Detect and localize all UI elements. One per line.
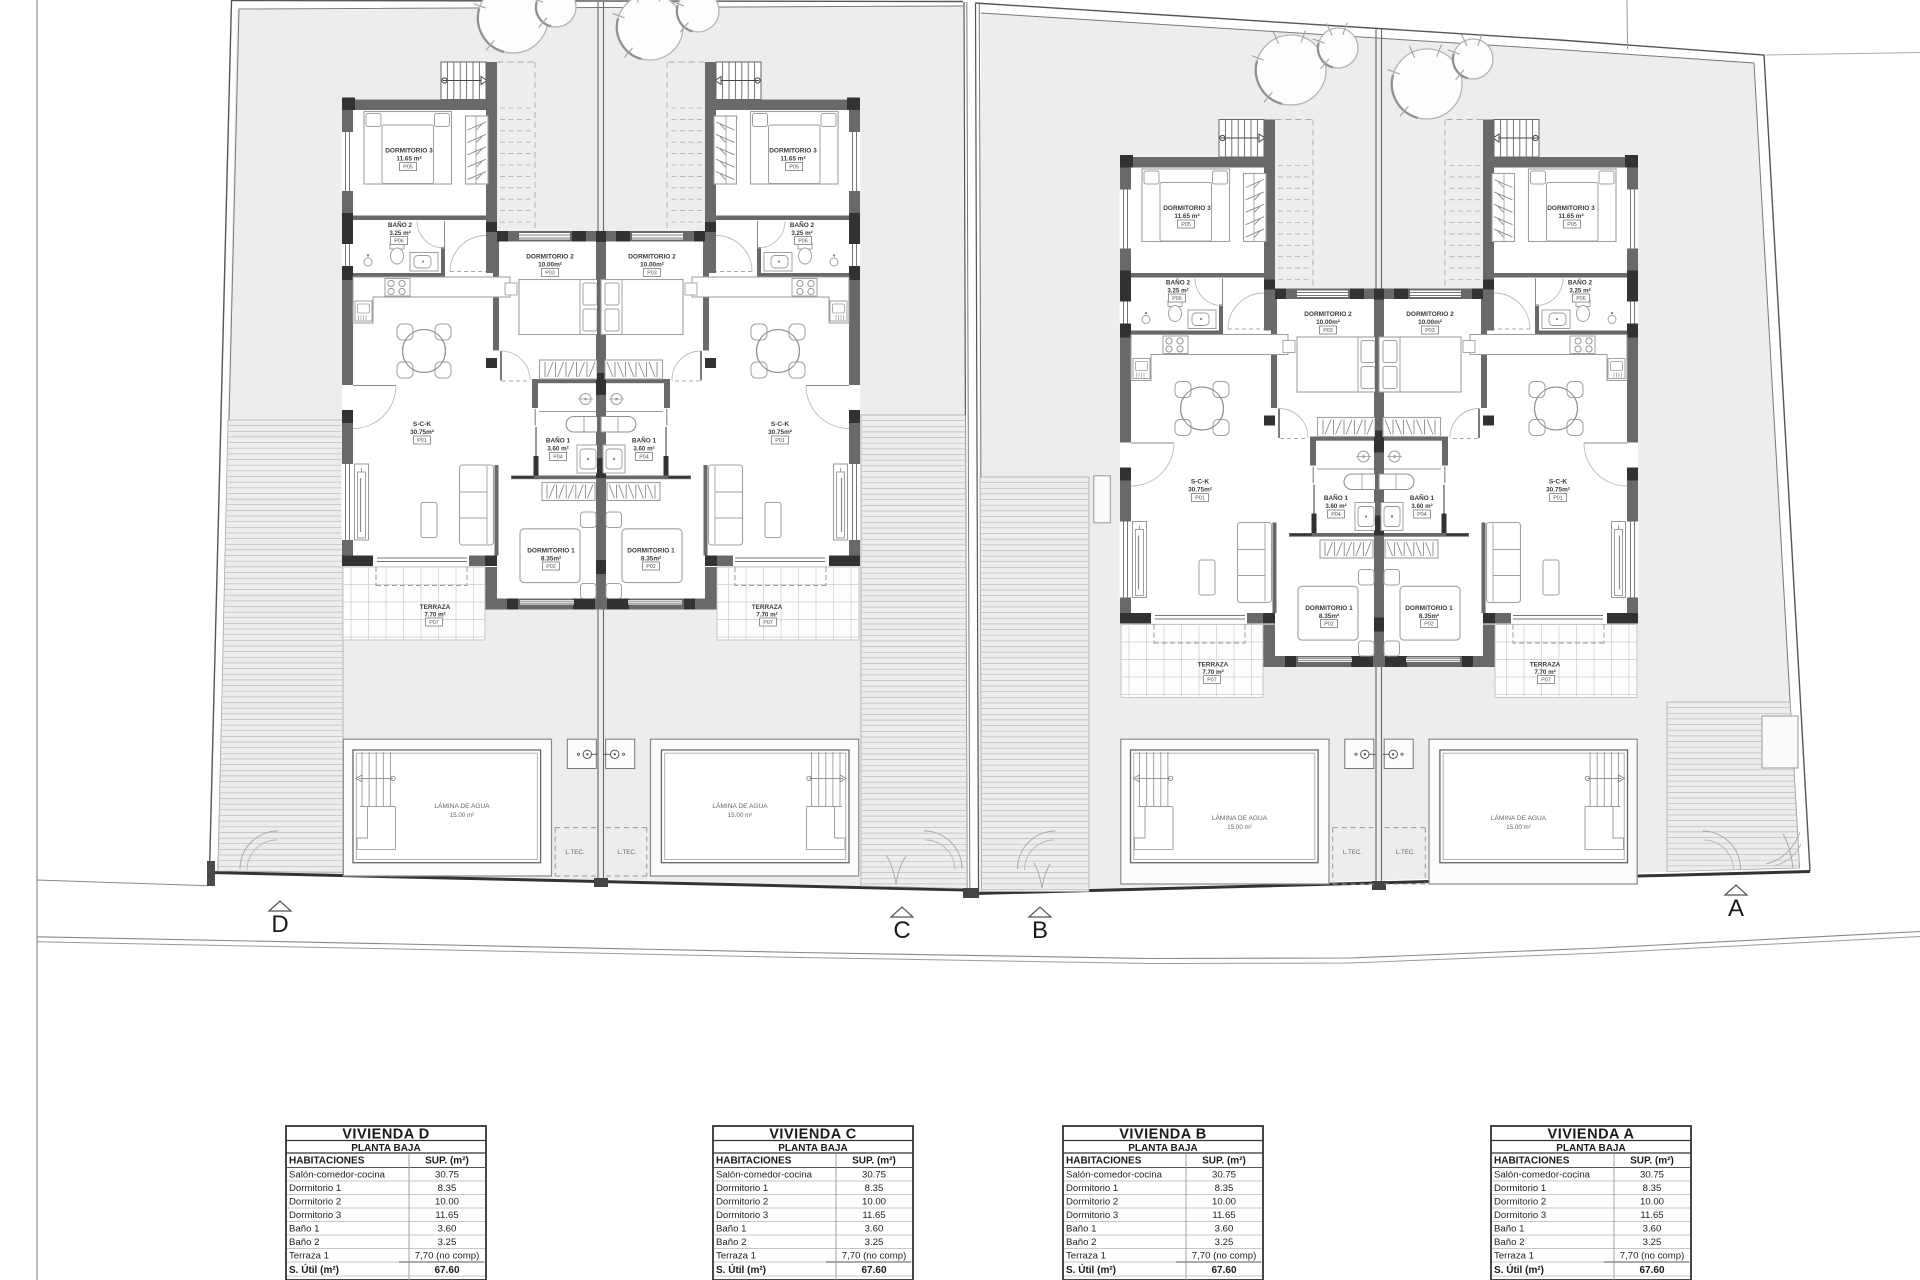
svg-text:11.65 m²: 11.65 m² bbox=[1558, 213, 1583, 220]
svg-text:HABITACIONES: HABITACIONES bbox=[716, 1156, 792, 1167]
svg-text:3.25: 3.25 bbox=[1643, 1237, 1662, 1248]
svg-text:P04: P04 bbox=[1331, 512, 1341, 518]
svg-text:Salón-comedor-cocina: Salón-comedor-cocina bbox=[716, 1170, 813, 1181]
svg-text:P06: P06 bbox=[1576, 296, 1586, 302]
svg-text:Dormitorio 3: Dormitorio 3 bbox=[1494, 1210, 1546, 1221]
svg-text:DORMITORIO 3: DORMITORIO 3 bbox=[1163, 205, 1211, 212]
svg-text:DORMITORIO 1: DORMITORIO 1 bbox=[1305, 605, 1353, 612]
svg-text:8.35m²: 8.35m² bbox=[1319, 613, 1339, 620]
svg-text:S-C-K: S-C-K bbox=[1191, 479, 1210, 486]
svg-text:3.25 m²: 3.25 m² bbox=[791, 230, 812, 237]
svg-text:7.70 m²: 7.70 m² bbox=[1534, 669, 1555, 676]
svg-text:S. Útil (m²): S. Útil (m²) bbox=[716, 1263, 766, 1276]
svg-text:Dormitorio 1: Dormitorio 1 bbox=[289, 1183, 341, 1194]
svg-text:P05: P05 bbox=[1181, 222, 1191, 228]
svg-text:15.00 m²: 15.00 m² bbox=[450, 812, 474, 819]
svg-text:P01: P01 bbox=[775, 438, 785, 444]
svg-text:3.60: 3.60 bbox=[865, 1224, 884, 1235]
svg-text:TERRAZA: TERRAZA bbox=[1198, 662, 1229, 669]
svg-text:LÁMINA DE AGUA: LÁMINA DE AGUA bbox=[434, 801, 490, 810]
svg-text:P01: P01 bbox=[1553, 496, 1563, 502]
svg-text:DORMITORIO 2: DORMITORIO 2 bbox=[1304, 311, 1352, 318]
svg-text:30.75: 30.75 bbox=[1640, 1170, 1664, 1181]
svg-text:PLANTA BAJA: PLANTA BAJA bbox=[1128, 1143, 1197, 1154]
svg-text:30.75: 30.75 bbox=[1212, 1170, 1236, 1181]
svg-text:Baño 1: Baño 1 bbox=[1494, 1224, 1524, 1235]
svg-text:15.00 m²: 15.00 m² bbox=[728, 812, 752, 819]
svg-text:Dormitorio 1: Dormitorio 1 bbox=[1066, 1183, 1118, 1194]
svg-text:Dormitorio 2: Dormitorio 2 bbox=[716, 1197, 768, 1208]
svg-text:L.TEC.: L.TEC. bbox=[565, 849, 585, 856]
svg-text:LÁMINA DE AGUA: LÁMINA DE AGUA bbox=[712, 801, 768, 810]
svg-text:P04: P04 bbox=[639, 455, 649, 461]
svg-text:S. Útil (m²): S. Útil (m²) bbox=[289, 1263, 339, 1276]
svg-text:BAÑO 1: BAÑO 1 bbox=[1410, 493, 1435, 502]
svg-text:Baño 1: Baño 1 bbox=[1066, 1224, 1096, 1235]
svg-text:Terraza 1: Terraza 1 bbox=[716, 1251, 756, 1262]
svg-text:LÁMINA DE AGUA: LÁMINA DE AGUA bbox=[1491, 813, 1547, 822]
svg-text:SUP. (m²): SUP. (m²) bbox=[1202, 1156, 1246, 1167]
svg-text:Baño 2: Baño 2 bbox=[289, 1237, 319, 1248]
svg-text:HABITACIONES: HABITACIONES bbox=[289, 1156, 365, 1167]
svg-text:67.60: 67.60 bbox=[434, 1265, 459, 1276]
svg-text:3.60: 3.60 bbox=[1215, 1224, 1234, 1235]
svg-text:30.75: 30.75 bbox=[862, 1170, 886, 1181]
svg-text:P01: P01 bbox=[1195, 496, 1205, 502]
svg-text:10.00m²: 10.00m² bbox=[640, 262, 664, 269]
svg-text:10.00: 10.00 bbox=[862, 1197, 886, 1208]
svg-text:S-C-K: S-C-K bbox=[1549, 479, 1568, 486]
svg-text:Salón-comedor-cocina: Salón-comedor-cocina bbox=[289, 1170, 386, 1181]
svg-text:67.60: 67.60 bbox=[1639, 1265, 1664, 1276]
svg-text:DORMITORIO 1: DORMITORIO 1 bbox=[627, 548, 675, 555]
svg-text:P05: P05 bbox=[789, 165, 799, 171]
svg-text:11.65: 11.65 bbox=[862, 1210, 885, 1221]
svg-text:Baño 2: Baño 2 bbox=[1066, 1237, 1096, 1248]
svg-text:DORMITORIO 1: DORMITORIO 1 bbox=[1405, 605, 1453, 612]
svg-text:TERRAZA: TERRAZA bbox=[752, 604, 783, 611]
svg-text:P06: P06 bbox=[1172, 296, 1182, 302]
svg-text:Salón-comedor-cocina: Salón-comedor-cocina bbox=[1066, 1170, 1163, 1181]
svg-text:8.35: 8.35 bbox=[865, 1183, 884, 1194]
svg-text:Baño 2: Baño 2 bbox=[716, 1237, 746, 1248]
svg-text:30.75m²: 30.75m² bbox=[410, 429, 434, 436]
svg-text:67.60: 67.60 bbox=[861, 1265, 886, 1276]
svg-text:P04: P04 bbox=[1417, 512, 1427, 518]
svg-text:Dormitorio 3: Dormitorio 3 bbox=[716, 1210, 768, 1221]
svg-text:3.25: 3.25 bbox=[865, 1237, 884, 1248]
svg-text:7.70 m²: 7.70 m² bbox=[424, 612, 445, 619]
svg-text:3.60 m²: 3.60 m² bbox=[633, 446, 654, 453]
svg-text:P03: P03 bbox=[647, 271, 657, 277]
svg-text:30.75m²: 30.75m² bbox=[1546, 487, 1570, 494]
svg-text:11.65: 11.65 bbox=[1640, 1210, 1663, 1221]
svg-text:A: A bbox=[1728, 895, 1744, 922]
svg-text:P05: P05 bbox=[403, 165, 413, 171]
svg-text:Dormitorio 2: Dormitorio 2 bbox=[289, 1197, 341, 1208]
svg-text:8.35m²: 8.35m² bbox=[641, 556, 661, 563]
svg-text:SUP. (m²): SUP. (m²) bbox=[852, 1156, 896, 1167]
svg-text:BAÑO 1: BAÑO 1 bbox=[546, 436, 571, 445]
svg-text:B: B bbox=[1032, 917, 1048, 944]
svg-text:Dormitorio 1: Dormitorio 1 bbox=[716, 1183, 768, 1194]
svg-text:SUP. (m²): SUP. (m²) bbox=[425, 1156, 469, 1167]
svg-text:P06: P06 bbox=[798, 239, 808, 245]
svg-text:Baño 1: Baño 1 bbox=[716, 1224, 746, 1235]
svg-text:7,70 (no comp): 7,70 (no comp) bbox=[1192, 1251, 1257, 1262]
svg-text:10.00: 10.00 bbox=[1212, 1197, 1236, 1208]
svg-text:DORMITORIO 2: DORMITORIO 2 bbox=[526, 254, 574, 261]
svg-text:P05: P05 bbox=[1567, 222, 1577, 228]
svg-text:3.60 m²: 3.60 m² bbox=[547, 446, 568, 453]
svg-text:3.60: 3.60 bbox=[438, 1224, 457, 1235]
svg-text:3.60 m²: 3.60 m² bbox=[1411, 503, 1432, 510]
svg-text:BAÑO 2: BAÑO 2 bbox=[790, 220, 815, 229]
svg-text:Dormitorio 2: Dormitorio 2 bbox=[1066, 1197, 1118, 1208]
svg-text:8.35: 8.35 bbox=[1215, 1183, 1234, 1194]
svg-text:7,70 (no comp): 7,70 (no comp) bbox=[1620, 1251, 1685, 1262]
svg-text:11.65 m²: 11.65 m² bbox=[396, 156, 421, 163]
svg-text:PLANTA BAJA: PLANTA BAJA bbox=[351, 1143, 420, 1154]
svg-text:P07: P07 bbox=[1207, 678, 1217, 684]
svg-text:S-C-K: S-C-K bbox=[413, 421, 432, 428]
svg-text:P03: P03 bbox=[545, 271, 555, 277]
svg-text:Terraza 1: Terraza 1 bbox=[289, 1251, 329, 1262]
svg-text:L.TEC.: L.TEC. bbox=[1396, 849, 1416, 856]
svg-text:P02: P02 bbox=[1324, 622, 1334, 628]
svg-text:P07: P07 bbox=[429, 620, 439, 626]
svg-text:P03: P03 bbox=[1323, 328, 1333, 334]
svg-text:D: D bbox=[271, 911, 288, 938]
svg-text:8.35: 8.35 bbox=[438, 1183, 457, 1194]
svg-text:10.00m²: 10.00m² bbox=[1418, 319, 1442, 326]
svg-text:10.00m²: 10.00m² bbox=[538, 262, 562, 269]
svg-text:BAÑO 1: BAÑO 1 bbox=[1324, 493, 1349, 502]
svg-text:P04: P04 bbox=[553, 455, 563, 461]
svg-text:P02: P02 bbox=[1424, 622, 1434, 628]
svg-text:SUP. (m²): SUP. (m²) bbox=[1630, 1156, 1674, 1167]
svg-text:11.65: 11.65 bbox=[435, 1210, 458, 1221]
svg-text:P02: P02 bbox=[546, 564, 556, 570]
svg-text:Dormitorio 3: Dormitorio 3 bbox=[1066, 1210, 1118, 1221]
svg-text:L.TEC.: L.TEC. bbox=[1343, 849, 1363, 856]
svg-text:Terraza 1: Terraza 1 bbox=[1066, 1251, 1106, 1262]
svg-text:3.25 m²: 3.25 m² bbox=[1167, 288, 1188, 295]
svg-text:DORMITORIO 2: DORMITORIO 2 bbox=[628, 254, 676, 261]
svg-text:3.25: 3.25 bbox=[1215, 1237, 1234, 1248]
svg-text:DORMITORIO 1: DORMITORIO 1 bbox=[527, 548, 575, 555]
svg-text:S. Útil (m²): S. Útil (m²) bbox=[1494, 1263, 1544, 1276]
svg-text:P03: P03 bbox=[1425, 328, 1435, 334]
svg-text:P07: P07 bbox=[1541, 678, 1551, 684]
svg-text:3.60 m²: 3.60 m² bbox=[1325, 503, 1346, 510]
svg-text:TERRAZA: TERRAZA bbox=[1530, 662, 1561, 669]
svg-text:10.00m²: 10.00m² bbox=[1316, 319, 1340, 326]
svg-text:30.75m²: 30.75m² bbox=[768, 429, 792, 436]
svg-text:Dormitorio 1: Dormitorio 1 bbox=[1494, 1183, 1546, 1194]
svg-text:8.35m²: 8.35m² bbox=[541, 556, 561, 563]
svg-text:HABITACIONES: HABITACIONES bbox=[1066, 1156, 1142, 1167]
svg-text:S-C-K: S-C-K bbox=[771, 421, 790, 428]
svg-text:TERRAZA: TERRAZA bbox=[420, 604, 451, 611]
svg-text:11.65 m²: 11.65 m² bbox=[1174, 213, 1199, 220]
svg-text:3.25 m²: 3.25 m² bbox=[389, 230, 410, 237]
svg-text:Baño 1: Baño 1 bbox=[289, 1224, 319, 1235]
svg-text:BAÑO 2: BAÑO 2 bbox=[1568, 278, 1593, 287]
svg-text:3.60: 3.60 bbox=[1643, 1224, 1662, 1235]
svg-text:DORMITORIO 3: DORMITORIO 3 bbox=[385, 148, 433, 155]
svg-text:DORMITORIO 3: DORMITORIO 3 bbox=[1547, 205, 1595, 212]
svg-text:10.00: 10.00 bbox=[1640, 1197, 1664, 1208]
svg-text:Baño 2: Baño 2 bbox=[1494, 1237, 1524, 1248]
svg-text:11.65 m²: 11.65 m² bbox=[780, 156, 805, 163]
svg-text:P06: P06 bbox=[394, 239, 404, 245]
svg-text:DORMITORIO 3: DORMITORIO 3 bbox=[769, 148, 817, 155]
svg-text:PLANTA BAJA: PLANTA BAJA bbox=[778, 1143, 847, 1154]
svg-text:67.60: 67.60 bbox=[1211, 1265, 1236, 1276]
svg-text:HABITACIONES: HABITACIONES bbox=[1494, 1156, 1570, 1167]
svg-text:15.00 m²: 15.00 m² bbox=[1506, 824, 1530, 831]
svg-text:Dormitorio 3: Dormitorio 3 bbox=[289, 1210, 341, 1221]
svg-text:11.65: 11.65 bbox=[1212, 1210, 1235, 1221]
svg-text:30.75: 30.75 bbox=[435, 1170, 459, 1181]
svg-text:P02: P02 bbox=[646, 564, 656, 570]
svg-text:BAÑO 1: BAÑO 1 bbox=[632, 436, 657, 445]
svg-text:7,70 (no comp): 7,70 (no comp) bbox=[415, 1251, 480, 1262]
svg-text:L.TEC.: L.TEC. bbox=[617, 849, 637, 856]
svg-text:Dormitorio 2: Dormitorio 2 bbox=[1494, 1197, 1546, 1208]
svg-text:P01: P01 bbox=[417, 438, 427, 444]
svg-text:7.70 m²: 7.70 m² bbox=[756, 612, 777, 619]
svg-text:Terraza 1: Terraza 1 bbox=[1494, 1251, 1534, 1262]
svg-text:8.35m²: 8.35m² bbox=[1419, 613, 1439, 620]
svg-text:S. Útil (m²): S. Útil (m²) bbox=[1066, 1263, 1116, 1276]
svg-text:10.00: 10.00 bbox=[435, 1197, 459, 1208]
svg-text:DORMITORIO 2: DORMITORIO 2 bbox=[1406, 311, 1454, 318]
svg-text:LÁMINA DE AGUA: LÁMINA DE AGUA bbox=[1212, 813, 1268, 822]
svg-text:30.75m²: 30.75m² bbox=[1188, 487, 1212, 494]
svg-text:BAÑO 2: BAÑO 2 bbox=[1166, 278, 1191, 287]
svg-text:BAÑO 2: BAÑO 2 bbox=[388, 220, 413, 229]
svg-text:P07: P07 bbox=[763, 620, 773, 626]
svg-text:3.25 m²: 3.25 m² bbox=[1569, 288, 1590, 295]
svg-text:7,70 (no comp): 7,70 (no comp) bbox=[842, 1251, 907, 1262]
svg-text:15.00 m²: 15.00 m² bbox=[1227, 824, 1251, 831]
svg-text:Salón-comedor-cocina: Salón-comedor-cocina bbox=[1494, 1170, 1591, 1181]
svg-text:7.70 m²: 7.70 m² bbox=[1202, 669, 1223, 676]
svg-text:PLANTA BAJA: PLANTA BAJA bbox=[1556, 1143, 1625, 1154]
svg-text:8.35: 8.35 bbox=[1643, 1183, 1662, 1194]
svg-text:C: C bbox=[893, 917, 910, 944]
svg-text:3.25: 3.25 bbox=[438, 1237, 457, 1248]
